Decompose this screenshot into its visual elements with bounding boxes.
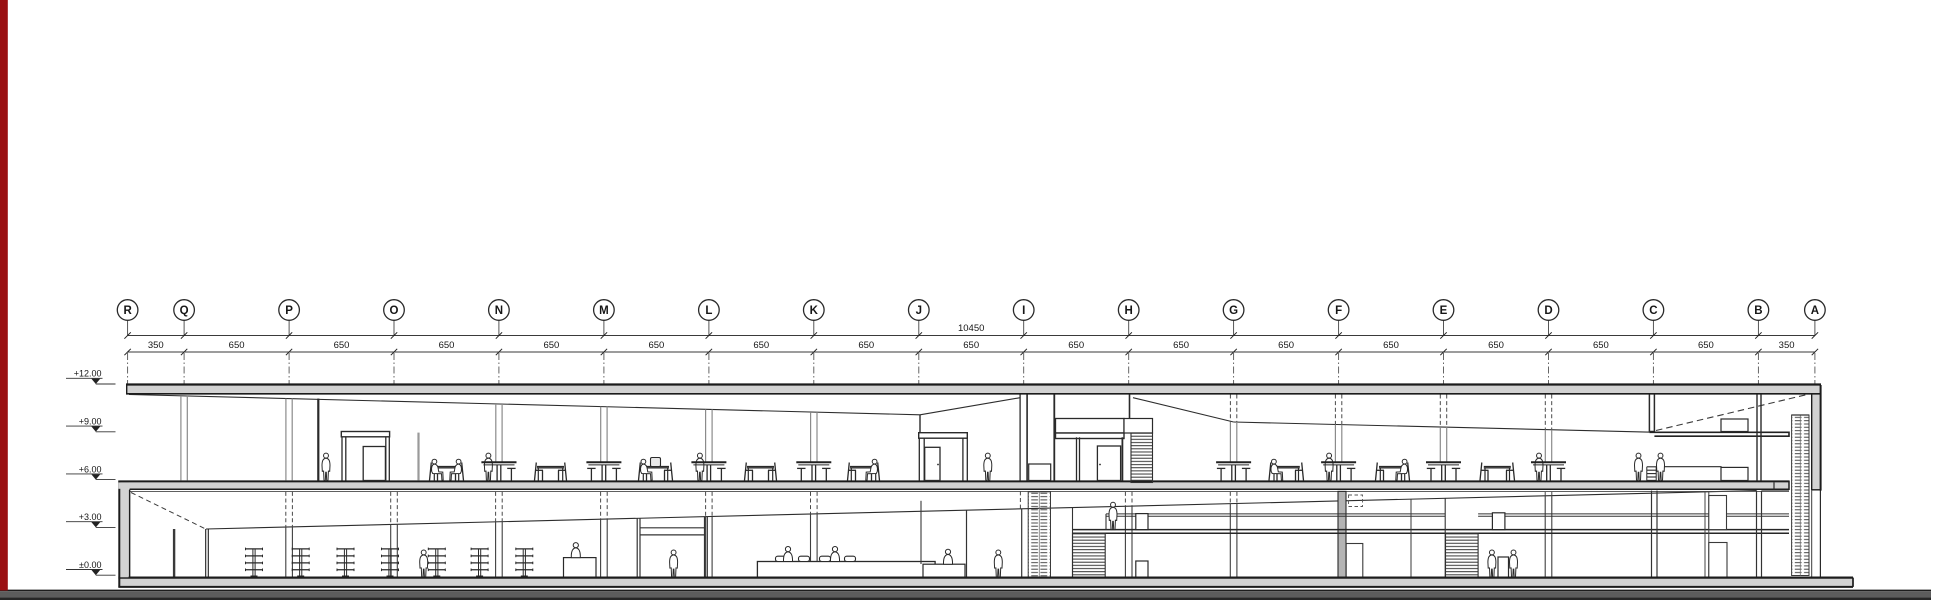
svg-text:N: N: [495, 305, 503, 317]
svg-text:650: 650: [858, 340, 874, 351]
svg-text:650: 650: [1488, 340, 1504, 351]
svg-text:A: A: [1811, 305, 1819, 317]
svg-text:650: 650: [1278, 340, 1294, 351]
svg-text:650: 650: [1068, 340, 1084, 351]
svg-text:650: 650: [229, 340, 245, 351]
svg-text:F: F: [1335, 305, 1342, 317]
svg-text:P: P: [285, 305, 293, 317]
svg-text:650: 650: [1383, 340, 1399, 351]
svg-text:350: 350: [1779, 340, 1795, 351]
svg-text:I: I: [1022, 305, 1025, 317]
svg-text:10450: 10450: [958, 323, 984, 334]
svg-text:R: R: [123, 305, 132, 317]
svg-text:650: 650: [1173, 340, 1189, 351]
svg-text:K: K: [810, 305, 819, 317]
svg-text:G: G: [1229, 305, 1238, 317]
svg-text:+3.00: +3.00: [79, 512, 102, 522]
svg-text:+12.00: +12.00: [74, 369, 102, 379]
svg-text:650: 650: [963, 340, 979, 351]
svg-text:L: L: [705, 305, 712, 317]
svg-text:650: 650: [1593, 340, 1609, 351]
svg-text:O: O: [390, 305, 399, 317]
svg-text:B: B: [1754, 305, 1762, 317]
svg-text:650: 650: [753, 340, 769, 351]
svg-text:H: H: [1125, 305, 1133, 317]
svg-text:M: M: [599, 305, 609, 317]
svg-text:±0.00: ±0.00: [79, 560, 101, 570]
svg-text:Q: Q: [180, 305, 189, 317]
svg-text:650: 650: [543, 340, 559, 351]
svg-text:650: 650: [334, 340, 350, 351]
svg-text:C: C: [1649, 305, 1657, 317]
svg-text:350: 350: [148, 340, 164, 351]
svg-text:650: 650: [648, 340, 664, 351]
svg-text:650: 650: [439, 340, 455, 351]
svg-text:650: 650: [1698, 340, 1714, 351]
svg-text:E: E: [1440, 305, 1448, 317]
svg-text:J: J: [916, 305, 922, 317]
svg-text:D: D: [1544, 305, 1552, 317]
svg-text:+9.00: +9.00: [79, 417, 102, 427]
svg-text:+6.00: +6.00: [79, 464, 102, 474]
